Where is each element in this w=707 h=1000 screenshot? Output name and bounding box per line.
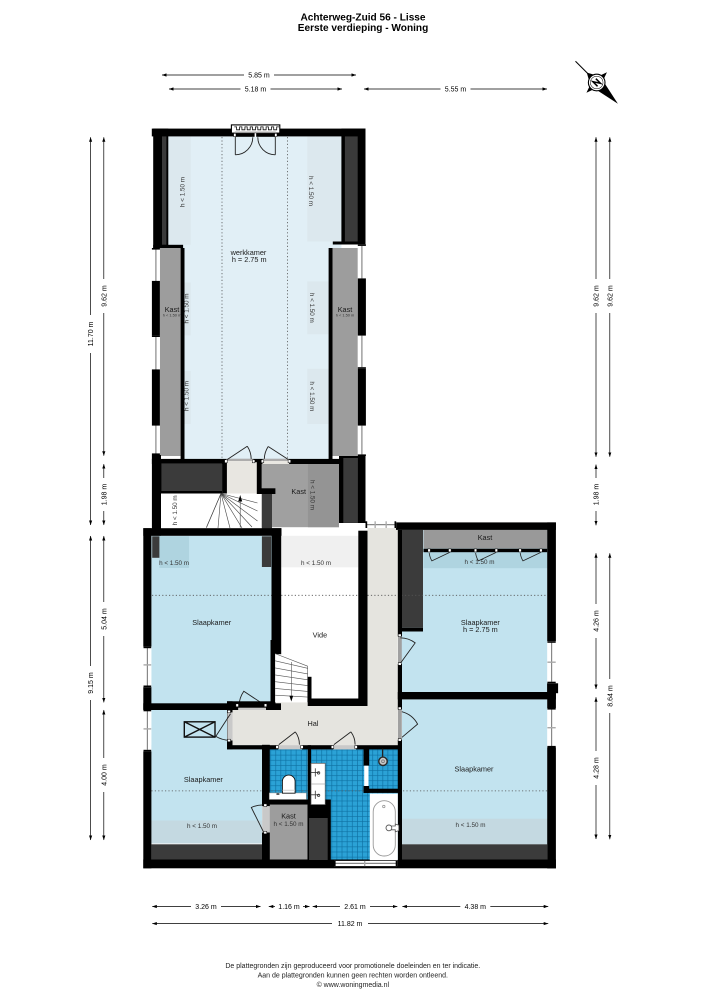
svg-text:Aan de plattegronden kunnen ge: Aan de plattegronden kunnen geen rechten…	[258, 973, 448, 980]
svg-text:4.28 m: 4.28 m	[594, 757, 601, 779]
svg-text:h < 1.50 m: h < 1.50 m	[159, 560, 189, 567]
svg-text:8.64 m: 8.64 m	[607, 685, 614, 707]
svg-text:h < 1.50 m: h < 1.50 m	[184, 294, 191, 324]
svg-text:h < 1.50 m: h < 1.50 m	[307, 176, 314, 206]
svg-text:h < 1.50 m: h < 1.50 m	[308, 480, 315, 510]
svg-text:3.26 m: 3.26 m	[195, 904, 217, 911]
svg-text:9.62 m: 9.62 m	[607, 285, 614, 307]
svg-text:5.04 m: 5.04 m	[101, 608, 108, 630]
svg-text:h < 1.50 m: h < 1.50 m	[184, 381, 191, 411]
svg-text:5.18 m: 5.18 m	[245, 87, 267, 94]
svg-text:h < 1.50 m: h < 1.50 m	[336, 313, 355, 318]
svg-text:h < 1.50 m: h < 1.50 m	[274, 821, 304, 828]
svg-text:h < 1.50 m: h < 1.50 m	[172, 495, 179, 525]
svg-text:11.70 m: 11.70 m	[88, 321, 95, 346]
svg-text:h < 1.50 m: h < 1.50 m	[456, 822, 486, 829]
svg-text:Slaapkamer: Slaapkamer	[192, 618, 232, 627]
svg-text:De plattegronden zijn geproduc: De plattegronden zijn geproduceerd voor …	[225, 963, 480, 970]
svg-text:h < 1.50 m: h < 1.50 m	[163, 313, 182, 318]
svg-text:4.00 m: 4.00 m	[101, 764, 108, 786]
svg-text:4.38 m: 4.38 m	[465, 904, 487, 911]
svg-text:Slaapkamer: Slaapkamer	[455, 765, 495, 774]
svg-text:Hal: Hal	[308, 719, 319, 728]
svg-text:2.61 m: 2.61 m	[344, 904, 366, 911]
svg-text:4.26 m: 4.26 m	[594, 610, 601, 632]
svg-text:5.85 m: 5.85 m	[248, 73, 270, 80]
svg-text:1.98 m: 1.98 m	[594, 484, 601, 506]
svg-text:Kast: Kast	[478, 533, 493, 542]
svg-text:5.55 m: 5.55 m	[445, 87, 467, 94]
svg-text:1.98 m: 1.98 m	[101, 484, 108, 506]
svg-text:Vide: Vide	[313, 630, 327, 639]
svg-text:h < 1.50 m: h < 1.50 m	[308, 381, 315, 411]
svg-text:9.15 m: 9.15 m	[88, 672, 95, 694]
svg-text:h < 1.50 m: h < 1.50 m	[301, 560, 331, 567]
svg-text:11.82 m: 11.82 m	[338, 921, 363, 928]
svg-text:Slaapkamer: Slaapkamer	[184, 775, 224, 784]
svg-text:Kast: Kast	[281, 812, 296, 821]
svg-text:h < 1.50 m: h < 1.50 m	[308, 293, 315, 323]
svg-text:© www.woningmedia.nl: © www.woningmedia.nl	[317, 981, 390, 989]
svg-text:9.62 m: 9.62 m	[101, 285, 108, 307]
svg-text:Kast: Kast	[291, 487, 306, 496]
svg-text:h < 1.50 m: h < 1.50 m	[187, 823, 217, 830]
svg-text:1.16 m: 1.16 m	[278, 904, 300, 911]
svg-text:h = 2.75 m: h = 2.75 m	[463, 625, 498, 634]
svg-text:h = 2.75 m: h = 2.75 m	[232, 255, 267, 264]
svg-text:Achterweg-Zuid 56 - Lisse: Achterweg-Zuid 56 - Lisse	[300, 13, 425, 24]
svg-text:Eerste verdieping - Woning: Eerste verdieping - Woning	[298, 23, 429, 34]
svg-text:9.62 m: 9.62 m	[594, 285, 601, 307]
svg-text:h < 1.50 m: h < 1.50 m	[180, 177, 187, 207]
